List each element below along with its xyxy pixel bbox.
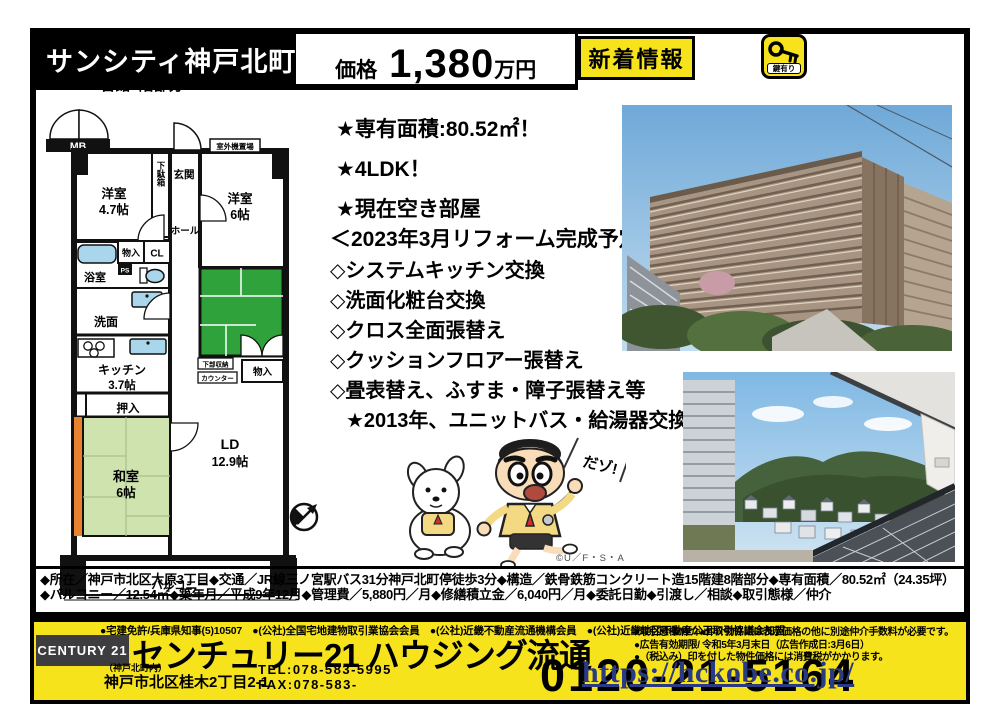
key-badge-label: 鍵有り (767, 63, 801, 74)
entrance-label: 玄関 (174, 168, 195, 181)
bath-label: 浴室 (84, 270, 106, 284)
western2-label: 洋室 (227, 191, 253, 206)
western1-label: 洋室 (101, 186, 127, 201)
highlight-area: ★専有面積:80.52㎡！ (336, 110, 540, 150)
footer-note-1: ●取引態様/仲介●仲介物件には表示価格の他に別途仲介手数料が必要です。 (634, 627, 969, 640)
floor-plan: MB 室外機置場 下駄箱 玄関 洋室 4.7帖 洋室 6帖 ホール 物入 CL … (34, 93, 330, 613)
japanese-room: 和室 6帖 (74, 417, 170, 536)
ld-label: LD (221, 436, 240, 452)
western1-size: 4.7帖 (99, 202, 129, 217)
entrance-door-arc (174, 123, 201, 150)
compass-icon (291, 504, 317, 530)
fax-number: FAX:078-583- (258, 677, 358, 692)
hall-label: ホール (171, 226, 200, 237)
outdoor-unit-label: 室外機置場 (216, 141, 254, 151)
reform-item-tatami: ◇畳表替え、ふすま・障子張替え等 (330, 376, 688, 406)
mb-closet: MB (46, 110, 110, 153)
office-address: 神戸市北区桂木2丁目2-1 (104, 671, 269, 692)
japanese-size: 6帖 (116, 485, 136, 500)
toilet-icon (140, 268, 164, 283)
speech-text: だゾ! (581, 453, 619, 478)
key-available-badge: 鍵有り (761, 34, 807, 79)
boy-character (478, 439, 583, 568)
dog-character (404, 454, 470, 559)
view-photo (683, 372, 955, 562)
tel-number: TEL:078-583-5995 (258, 662, 392, 677)
ld-size: 12.9帖 (212, 454, 249, 469)
counter-label: カウンター (201, 374, 234, 383)
washroom-label: 洗面 (94, 314, 118, 329)
highlight-list: ★専有面積:80.52㎡！ ★4LDK！ ★現在空き部屋 (336, 110, 540, 230)
watermark-url: https://hckobe.co.jp/ (582, 656, 854, 690)
kitchen-sink-icon (130, 339, 166, 354)
copyright-text: ©U／F・S・A・A (556, 553, 626, 564)
green-room (200, 268, 283, 356)
mascot-illustration: だゾ! ©U／F・S・A・A (378, 416, 626, 568)
storage1-label: 物入 (122, 247, 140, 258)
price-box: 価格 1,380 万円 (296, 34, 575, 84)
price-unit: 万円 (494, 54, 536, 84)
oshiire-label: 押入 (117, 401, 140, 415)
storage2-label: 物入 (253, 366, 273, 378)
property-title: サンシティ神戸北町 (31, 40, 296, 79)
speech-dazo: だゾ! (564, 438, 626, 482)
kitchen-size: 3.7帖 (108, 378, 136, 392)
kitchen-label: キッチン (98, 363, 146, 377)
building-floor-note: 1番館7階部分 (92, 74, 184, 95)
lower-storage-label: 下部収納 (203, 360, 230, 369)
highlight-layout: ★4LDK！ (336, 150, 540, 190)
ps-label: PS (121, 268, 130, 275)
price-value: 1,380 (389, 42, 494, 87)
property-details-text: ◆所在／神戸市北区大原3丁目◆交通／JR線三ノ宮駅バス31分神戸北町停徒歩3分◆… (36, 566, 964, 602)
japanese-label: 和室 (113, 469, 139, 484)
price-label: 価格 (335, 54, 377, 84)
closet-label: CL (150, 249, 163, 260)
new-info-badge: 新着情報 (578, 36, 695, 80)
key-icon (764, 39, 804, 65)
stove-icon (78, 339, 114, 357)
building-photo (622, 105, 952, 351)
western2-size: 6帖 (230, 207, 250, 222)
shoe-box-label: 下駄箱 (156, 161, 166, 187)
bathtub-icon (78, 245, 116, 263)
